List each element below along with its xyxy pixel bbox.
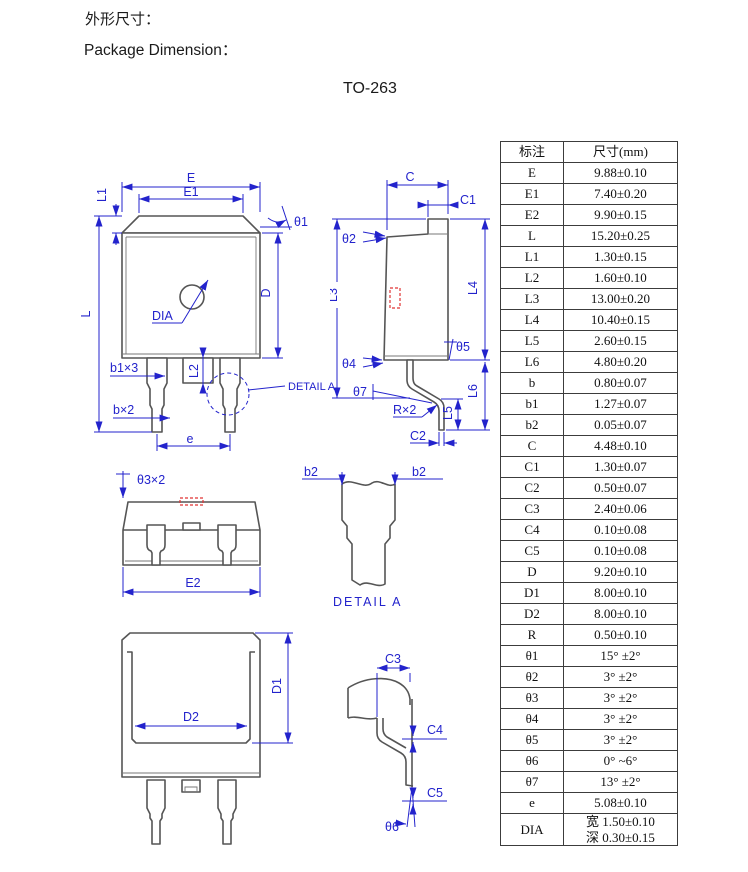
dim-value-cell: 5.08±0.10 [564,793,678,814]
dim-label-theta6: θ6 [385,820,399,834]
dim-value-cell: 0.10±0.08 [564,520,678,541]
dim-label-cell: θ7 [501,772,564,793]
dim-label-cell: D1 [501,583,564,604]
dim-value-cell: 2.60±0.15 [564,331,678,352]
dim-label-cell: E [501,163,564,184]
dim-value-cell: 3° ±2° [564,709,678,730]
dimension-table-body: E 9.88±0.10 E1 7.40±0.20 E2 9.90±0.15 L … [501,163,678,846]
table-row: b 0.80±0.07 [501,373,678,394]
dim-label-DIA: DIA [152,309,174,323]
dim-label-cell: L4 [501,310,564,331]
dim-label-cell: DIA [501,814,564,846]
dim-label-cell: E2 [501,205,564,226]
dim-label-cell: C5 [501,541,564,562]
dim-label-theta2: θ2 [342,232,356,246]
dim-value-cell: 15° ±2° [564,646,678,667]
dim-value-cell: 15.20±0.25 [564,226,678,247]
dim-label-bx2: b×2 [113,403,134,417]
dim-value-cell: 4.80±0.20 [564,352,678,373]
dim-label-cell: b2 [501,415,564,436]
dim-value-cell: 8.00±0.10 [564,604,678,625]
table-row: θ6 0° ~6° [501,751,678,772]
datasheet-page: 外形尺寸： Package Dimension： TO-263 E E1 [0,0,748,872]
detail-a-drawing: b2 b2 DETAIL A [300,462,445,617]
dimension-table-header-row: 标注 尺寸(mm) [501,142,678,163]
table-row: C 4.48±0.10 [501,436,678,457]
dim-label-cell: C3 [501,499,564,520]
dim-value-cell: 1.30±0.07 [564,457,678,478]
dim-label-L6: L6 [466,384,480,398]
dim-value-cell: 1.27±0.07 [564,394,678,415]
dim-value-cell: 0.80±0.07 [564,373,678,394]
dim-label-cell: θ5 [501,730,564,751]
dim-label-E: E [187,171,195,185]
page-title-en: Package Dimension： [84,38,237,60]
dim-label-cell: L1 [501,247,564,268]
dim-value-cell: 4.48±0.10 [564,436,678,457]
dim-value-cell: 10.40±0.15 [564,310,678,331]
table-row: θ4 3° ±2° [501,709,678,730]
table-row: θ7 13° ±2° [501,772,678,793]
dim-label-cell: C1 [501,457,564,478]
dimension-table: 标注 尺寸(mm) E 9.88±0.10 E1 7.40±0.20 E2 9.… [500,141,678,846]
table-row: C3 2.40±0.06 [501,499,678,520]
dim-value-cell: 13.00±0.20 [564,289,678,310]
table-row: D2 8.00±0.10 [501,604,678,625]
dim-value-cell: 3° ±2° [564,667,678,688]
dim-label-L1: L1 [95,188,109,202]
dim-label-C4: C4 [427,723,443,737]
dim-value-cell: 9.20±0.10 [564,562,678,583]
dim-label-C: C [405,170,414,184]
dim-label-cell: θ2 [501,667,564,688]
dim-label-D2: D2 [183,710,199,724]
dim-label-cell: θ6 [501,751,564,772]
dim-label-C5: C5 [427,786,443,800]
top-view-drawing: θ3×2 E2 [95,465,310,605]
dim-label-cell: D [501,562,564,583]
table-row: L6 4.80±0.20 [501,352,678,373]
dim-value-cell: 0.50±0.07 [564,478,678,499]
side-view-drawing: C C1 θ2 L3 L4 θ5 θ4 θ7 R×2 [330,162,500,462]
dim-label-L2: L2 [187,364,201,378]
dim-label-theta7: θ7 [353,385,367,399]
dim-label-cell: D2 [501,604,564,625]
page-title-cn: 外形尺寸： [85,8,160,29]
bottom-view-drawing: D1 D2 [95,628,310,872]
dim-label-L: L [79,310,93,317]
dim-label-cell: e [501,793,564,814]
table-row: C5 0.10±0.08 [501,541,678,562]
dim-label-cell: L3 [501,289,564,310]
table-row: E 9.88±0.10 [501,163,678,184]
dim-label-cell: θ4 [501,709,564,730]
dim-value-cell: 0.05±0.07 [564,415,678,436]
dim-label-Rx2: R×2 [393,403,416,417]
dim-value-cell: 7.40±0.20 [564,184,678,205]
dim-value-cell: 0° ~6° [564,751,678,772]
table-row: L4 10.40±0.15 [501,310,678,331]
dim-label-cell: L [501,226,564,247]
dim-value-cell: 1.60±0.10 [564,268,678,289]
dim-label-cell: θ1 [501,646,564,667]
top-view-body [123,498,260,565]
table-row: b1 1.27±0.07 [501,394,678,415]
dim-value-cell: 宽 1.50±0.10 深 0.30±0.15 [564,814,678,846]
table-row: b2 0.05±0.07 [501,415,678,436]
dim-label-b2-right: b2 [412,465,426,479]
table-row: R 0.50±0.10 [501,625,678,646]
bottom-view-body [122,633,260,844]
dim-label-theta4: θ4 [342,357,356,371]
dim-label-theta1: θ1 [294,215,308,229]
table-row: θ5 3° ±2° [501,730,678,751]
dim-label-cell: C4 [501,520,564,541]
dim-label-E1: E1 [183,185,198,199]
table-row: C1 1.30±0.07 [501,457,678,478]
dim-label-cell: b [501,373,564,394]
table-row: E2 9.90±0.15 [501,205,678,226]
table-row: θ1 15° ±2° [501,646,678,667]
dim-label-theta3x2: θ3×2 [137,473,165,487]
dim-label-b2-left: b2 [304,465,318,479]
dim-label-C2: C2 [410,429,426,443]
dim-value-cell: 0.50±0.10 [564,625,678,646]
table-row: θ3 3° ±2° [501,688,678,709]
dim-label-L3: L3 [330,288,340,302]
table-row: L3 13.00±0.20 [501,289,678,310]
dim-label-b1x3: b1×3 [110,361,138,375]
table-row: θ2 3° ±2° [501,667,678,688]
detail-a-leader-label: DETAIL A [288,381,336,393]
table-row: DIA 宽 1.50±0.10 深 0.30±0.15 [501,814,678,846]
header-value-column: 尺寸(mm) [564,142,678,163]
front-view-drawing: E E1 L1 θ1 L D DIA b1×3 b×2 [70,162,342,462]
dim-label-C3: C3 [385,652,401,666]
table-row: L 15.20±0.25 [501,226,678,247]
dim-label-L5: L5 [441,406,455,420]
dim-label-C1: C1 [460,193,476,207]
dim-label-cell: L6 [501,352,564,373]
table-row: C4 0.10±0.08 [501,520,678,541]
dim-label-cell: b1 [501,394,564,415]
dim-label-cell: θ3 [501,688,564,709]
dim-value-cell: 8.00±0.10 [564,583,678,604]
table-row: L2 1.60±0.10 [501,268,678,289]
dim-value-cell: 2.40±0.06 [564,499,678,520]
dim-label-E2: E2 [185,576,200,590]
dim-label-cell: C [501,436,564,457]
detail-a-lead-shape [342,482,395,586]
table-row: C2 0.50±0.07 [501,478,678,499]
dim-label-L4: L4 [466,281,480,295]
dim-label-cell: L2 [501,268,564,289]
lead-detail-body [348,679,413,787]
table-row: L1 1.30±0.15 [501,247,678,268]
dim-label-cell: L5 [501,331,564,352]
dim-value-cell: 9.88±0.10 [564,163,678,184]
dim-label-D1: D1 [270,678,284,694]
table-row: D1 8.00±0.10 [501,583,678,604]
front-view-body [122,216,260,432]
dim-value-cell: 3° ±2° [564,688,678,709]
detail-a-dimensions: b2 b2 DETAIL A [302,465,443,609]
dim-label-cell: E1 [501,184,564,205]
detail-a-caption: DETAIL A [333,595,403,609]
table-row: D 9.20±0.10 [501,562,678,583]
dim-value-cell: 0.10±0.08 [564,541,678,562]
dim-label-theta5: θ5 [456,340,470,354]
dim-value-cell: 9.90±0.15 [564,205,678,226]
dim-value-cell: 13° ±2° [564,772,678,793]
table-row: L5 2.60±0.15 [501,331,678,352]
dim-value-cell: 1.30±0.15 [564,247,678,268]
dim-label-D: D [259,288,273,297]
dim-value-cell: 3° ±2° [564,730,678,751]
table-row: E1 7.40±0.20 [501,184,678,205]
dim-label-cell: R [501,625,564,646]
table-row: e 5.08±0.10 [501,793,678,814]
dim-label-e: e [187,432,194,446]
header-label-column: 标注 [501,142,564,163]
lead-detail-drawing: C3 C4 C5 θ6 [335,635,480,872]
package-name: TO-263 [343,80,397,98]
dim-label-cell: C2 [501,478,564,499]
